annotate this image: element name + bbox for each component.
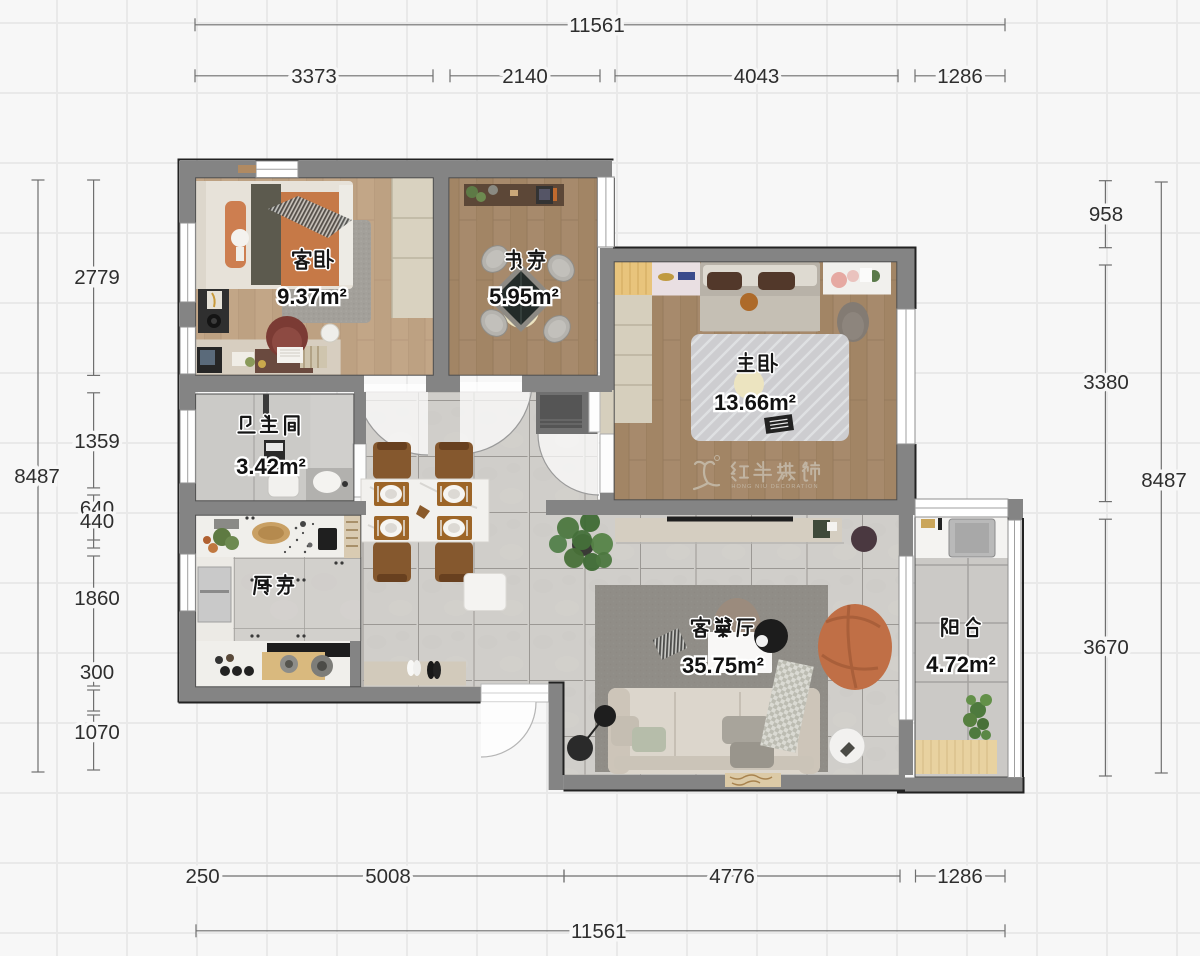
svg-text:5008: 5008 bbox=[365, 865, 411, 888]
svg-text:440: 440 bbox=[80, 510, 114, 533]
svg-text:11561: 11561 bbox=[571, 920, 626, 943]
svg-text:3380: 3380 bbox=[1083, 371, 1129, 394]
svg-text:1286: 1286 bbox=[937, 65, 983, 88]
svg-text:2779: 2779 bbox=[74, 266, 120, 289]
svg-text:8487: 8487 bbox=[14, 465, 60, 488]
svg-text:3373: 3373 bbox=[291, 65, 337, 88]
svg-text:13.66m²: 13.66m² bbox=[714, 390, 796, 415]
svg-text:4776: 4776 bbox=[709, 865, 755, 888]
svg-text:1286: 1286 bbox=[937, 865, 983, 888]
svg-text:250: 250 bbox=[185, 865, 219, 888]
svg-text:3670: 3670 bbox=[1083, 636, 1129, 659]
svg-text:1860: 1860 bbox=[74, 587, 120, 610]
svg-text:3.42m²: 3.42m² bbox=[236, 454, 306, 479]
svg-text:4043: 4043 bbox=[734, 65, 780, 88]
svg-text:1359: 1359 bbox=[74, 430, 120, 453]
svg-text:2140: 2140 bbox=[502, 65, 548, 88]
svg-text:958: 958 bbox=[1089, 203, 1123, 226]
svg-text:8487: 8487 bbox=[1141, 469, 1187, 492]
svg-text:11561: 11561 bbox=[569, 14, 624, 37]
svg-text:5.95m²: 5.95m² bbox=[489, 284, 559, 309]
svg-text:300: 300 bbox=[80, 661, 114, 684]
svg-text:HONG NIU DECORATION: HONG NIU DECORATION bbox=[731, 484, 818, 490]
svg-text:9.37m²: 9.37m² bbox=[277, 284, 347, 309]
svg-text:4.72m²: 4.72m² bbox=[926, 652, 996, 677]
svg-text:35.75m²: 35.75m² bbox=[682, 653, 764, 678]
svg-text:1070: 1070 bbox=[74, 721, 120, 744]
